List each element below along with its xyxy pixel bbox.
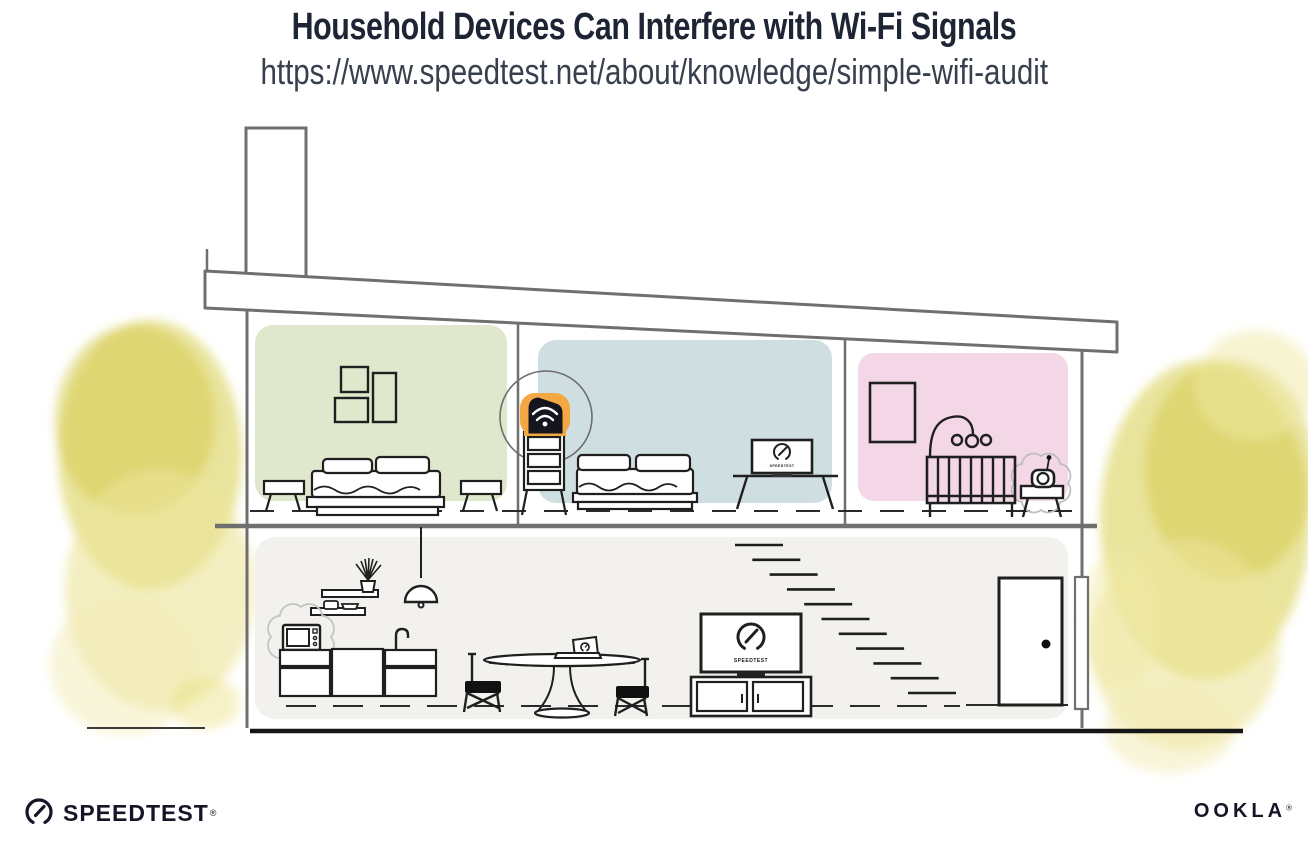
media-console: [691, 677, 811, 716]
bed-base: [307, 497, 444, 507]
bed-platform: [578, 502, 692, 509]
pillow: [578, 455, 630, 470]
door-knob: [1042, 640, 1051, 649]
bowl: [342, 604, 358, 609]
tv-screen-label: SPEEDTEST: [734, 658, 768, 664]
footer: SPEEDTEST® OOKLA®: [0, 790, 1308, 850]
bed: [573, 455, 697, 509]
tv: SPEEDTEST: [701, 614, 801, 676]
pillow: [376, 457, 429, 473]
infographic-page: Household Devices Can Interfere with Wi-…: [0, 0, 1308, 861]
bed-platform: [317, 507, 438, 515]
registered-mark: ®: [210, 808, 217, 818]
bed: [307, 457, 444, 515]
pillow: [636, 455, 690, 471]
bedroom-monitor-label: SPEEDTEST: [770, 464, 795, 468]
microwave-icon: [283, 625, 320, 650]
bedroom-monitor: SPEEDTEST: [752, 440, 812, 477]
cabinets: [280, 649, 436, 696]
registered-mark: ®: [1286, 804, 1292, 813]
ookla-wordmark: OOKLA: [1194, 800, 1286, 822]
speedtest-gauge-icon: [22, 796, 56, 830]
living-room: SPEEDTEST: [691, 614, 811, 716]
monitor-table: [1021, 486, 1063, 517]
tree-right: [1080, 330, 1308, 773]
downspout: [1075, 577, 1088, 709]
mattress: [577, 469, 693, 494]
mattress: [312, 471, 440, 497]
entry-door: [999, 578, 1062, 705]
cup: [324, 601, 338, 609]
ookla-logo: OOKLA®: [1194, 800, 1292, 823]
speedtest-logo: SPEEDTEST®: [22, 796, 216, 830]
pillow: [323, 459, 372, 473]
house-illustration: SPEEDTEST: [0, 0, 1308, 861]
speedtest-wordmark: SPEEDTEST: [63, 800, 209, 827]
chimney: [246, 128, 306, 280]
